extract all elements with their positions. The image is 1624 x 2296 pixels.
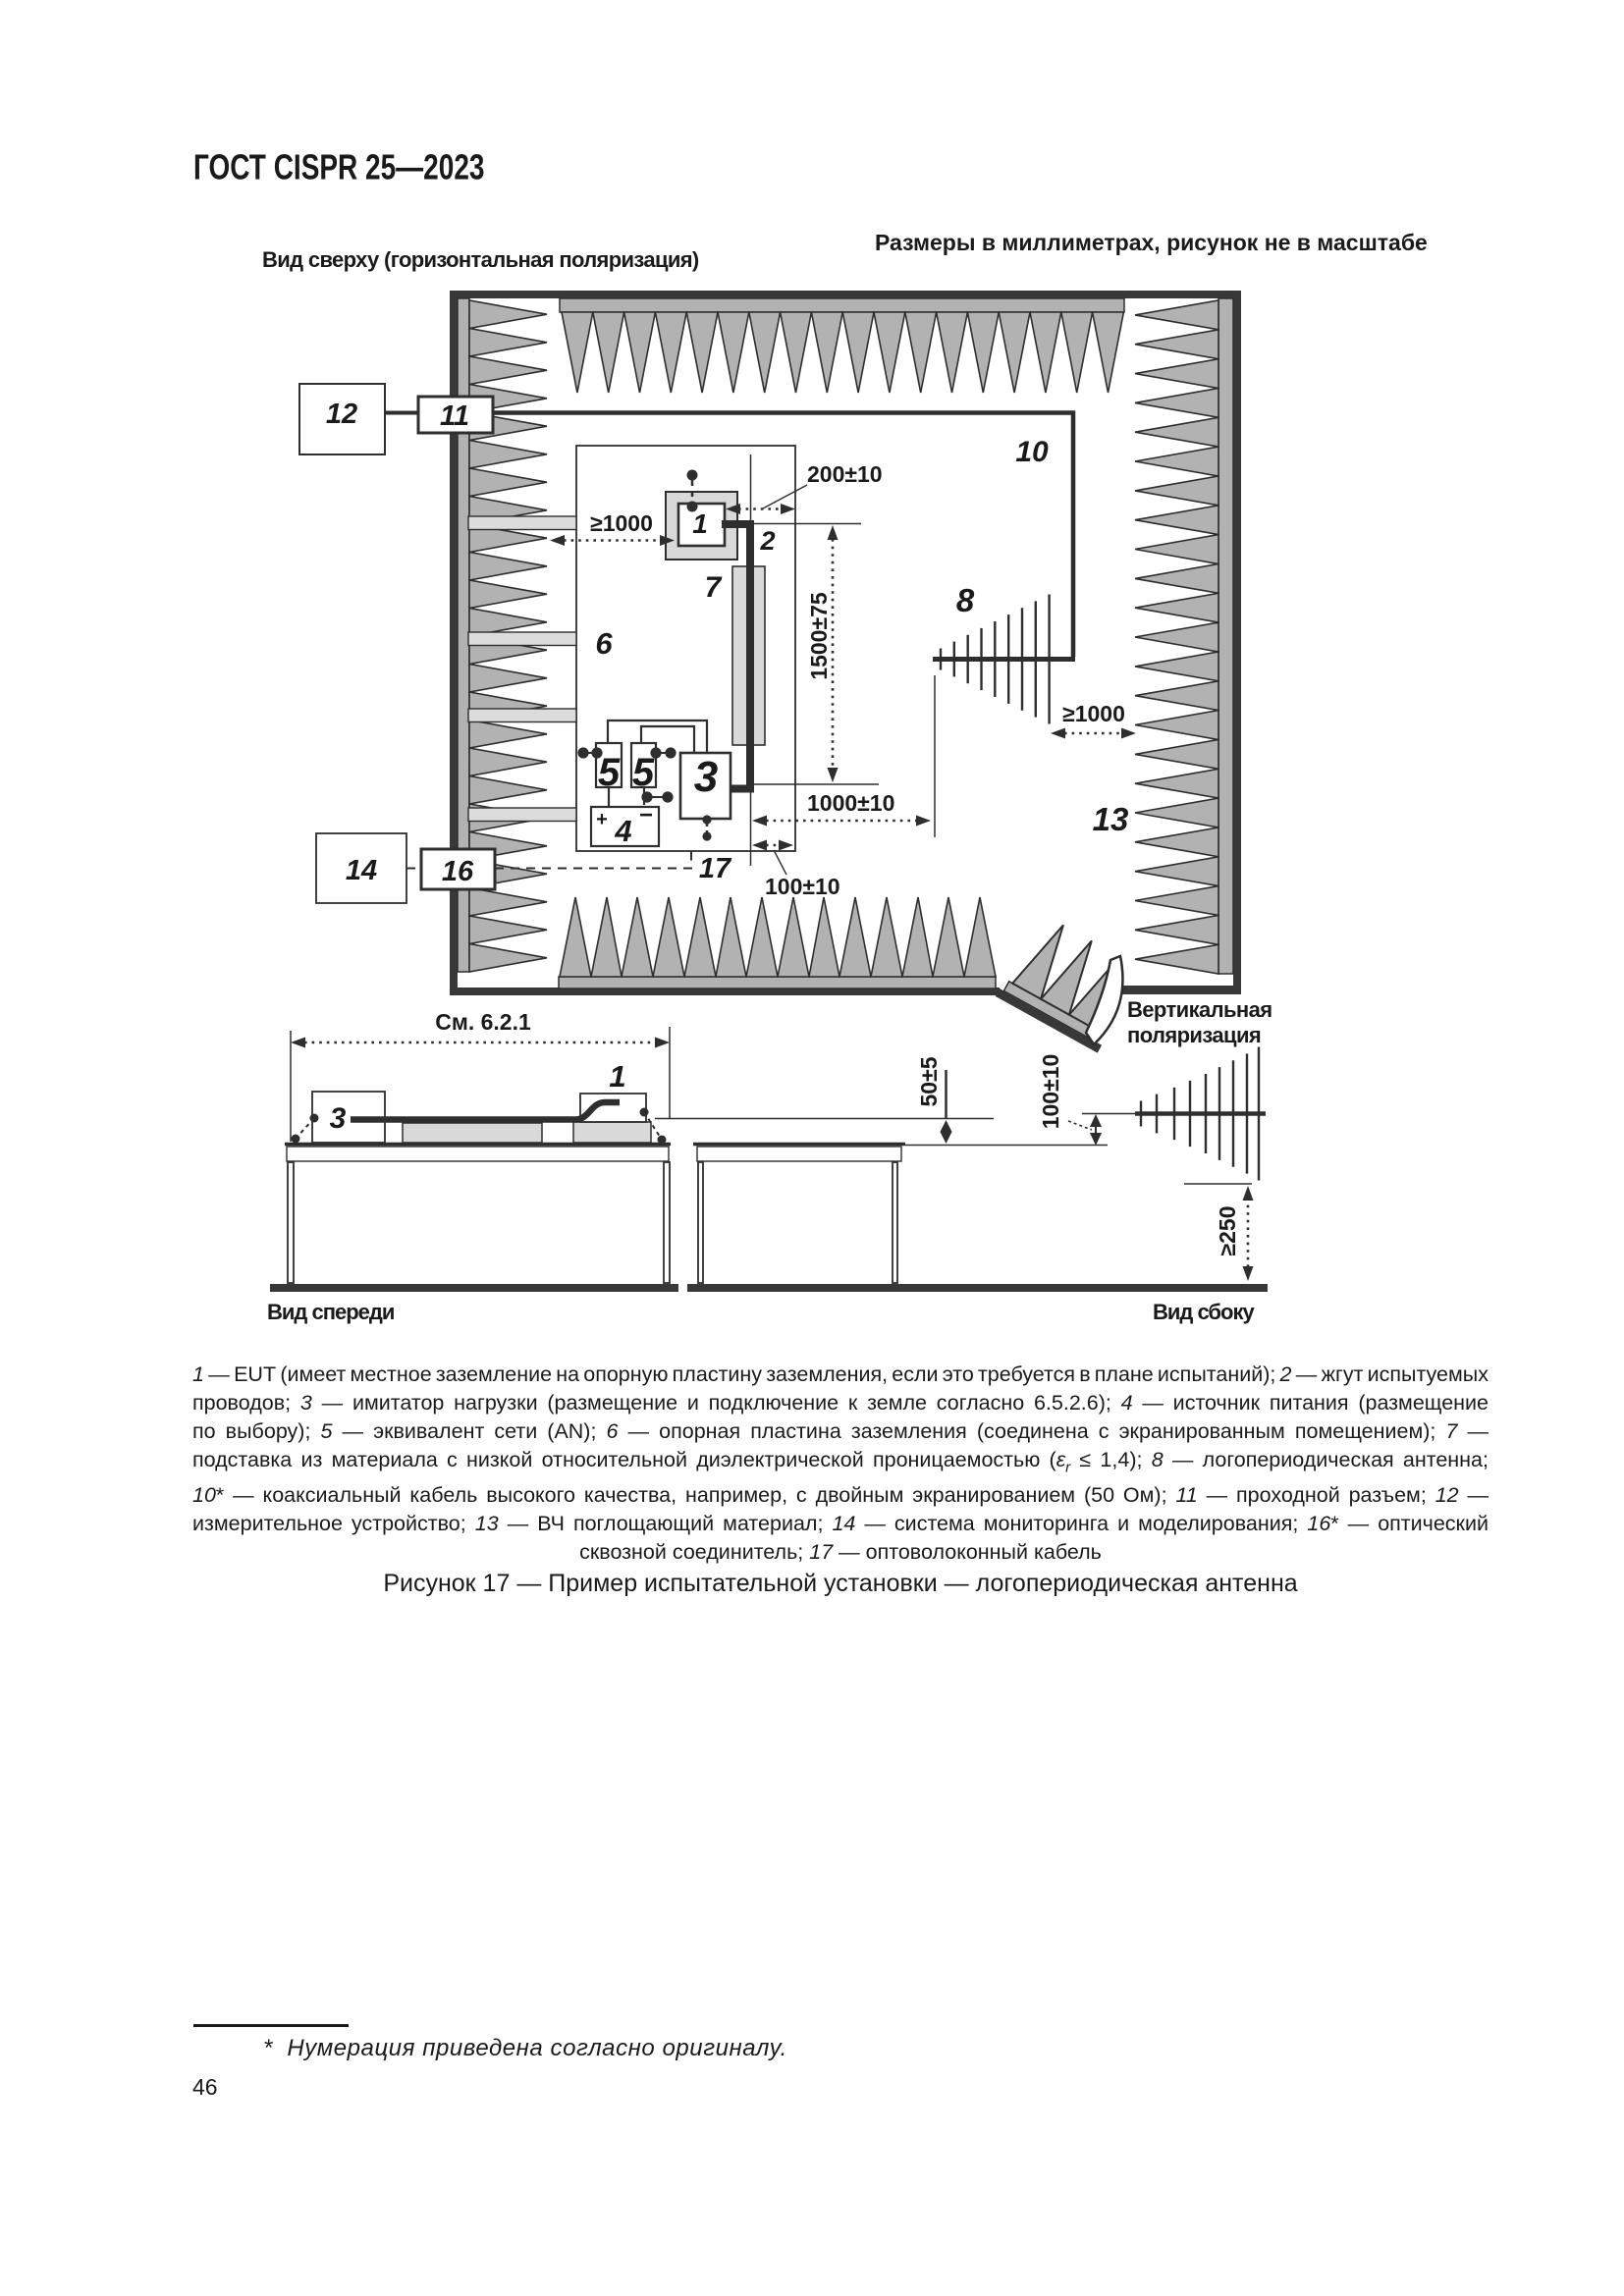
svg-text:16: 16 — [442, 856, 474, 887]
svg-text:Вид спереди: Вид спереди — [267, 1300, 394, 1324]
svg-text:11: 11 — [440, 400, 469, 432]
svg-text:Вертикальная: Вертикальная — [1127, 997, 1272, 1022]
svg-text:12: 12 — [326, 399, 357, 430]
svg-text:1: 1 — [692, 508, 708, 539]
svg-text:5: 5 — [632, 751, 655, 794]
svg-text:17: 17 — [699, 853, 732, 884]
svg-text:13: 13 — [1093, 801, 1129, 837]
svg-text:3: 3 — [330, 1102, 347, 1135]
svg-text:См. 6.2.1: См. 6.2.1 — [435, 1009, 531, 1035]
svg-text:3: 3 — [694, 753, 718, 801]
svg-text:1500±75: 1500±75 — [806, 592, 832, 680]
svg-text:5: 5 — [598, 751, 621, 794]
svg-text:14: 14 — [346, 855, 377, 886]
svg-text:10: 10 — [1015, 436, 1049, 468]
svg-text:≥1000: ≥1000 — [1062, 701, 1125, 726]
svg-text:4: 4 — [614, 814, 631, 848]
svg-text:−: − — [639, 802, 653, 828]
svg-text:7: 7 — [705, 571, 723, 604]
svg-text:6: 6 — [595, 626, 613, 661]
svg-text:≥250: ≥250 — [1215, 1206, 1240, 1256]
svg-text:1: 1 — [609, 1059, 625, 1094]
svg-text:2: 2 — [759, 526, 775, 556]
svg-text:8: 8 — [956, 582, 975, 618]
svg-text:поляризация: поляризация — [1127, 1023, 1261, 1047]
svg-text:1000±10: 1000±10 — [807, 790, 894, 816]
svg-text:Вид сбоку: Вид сбоку — [1153, 1300, 1255, 1324]
svg-text:100±10: 100±10 — [1038, 1054, 1063, 1130]
svg-text:+: + — [596, 809, 608, 830]
svg-text:≥1000: ≥1000 — [590, 510, 653, 536]
svg-text:100±10: 100±10 — [765, 874, 840, 899]
svg-text:50±5: 50±5 — [916, 1056, 942, 1106]
svg-text:200±10: 200±10 — [807, 461, 883, 487]
